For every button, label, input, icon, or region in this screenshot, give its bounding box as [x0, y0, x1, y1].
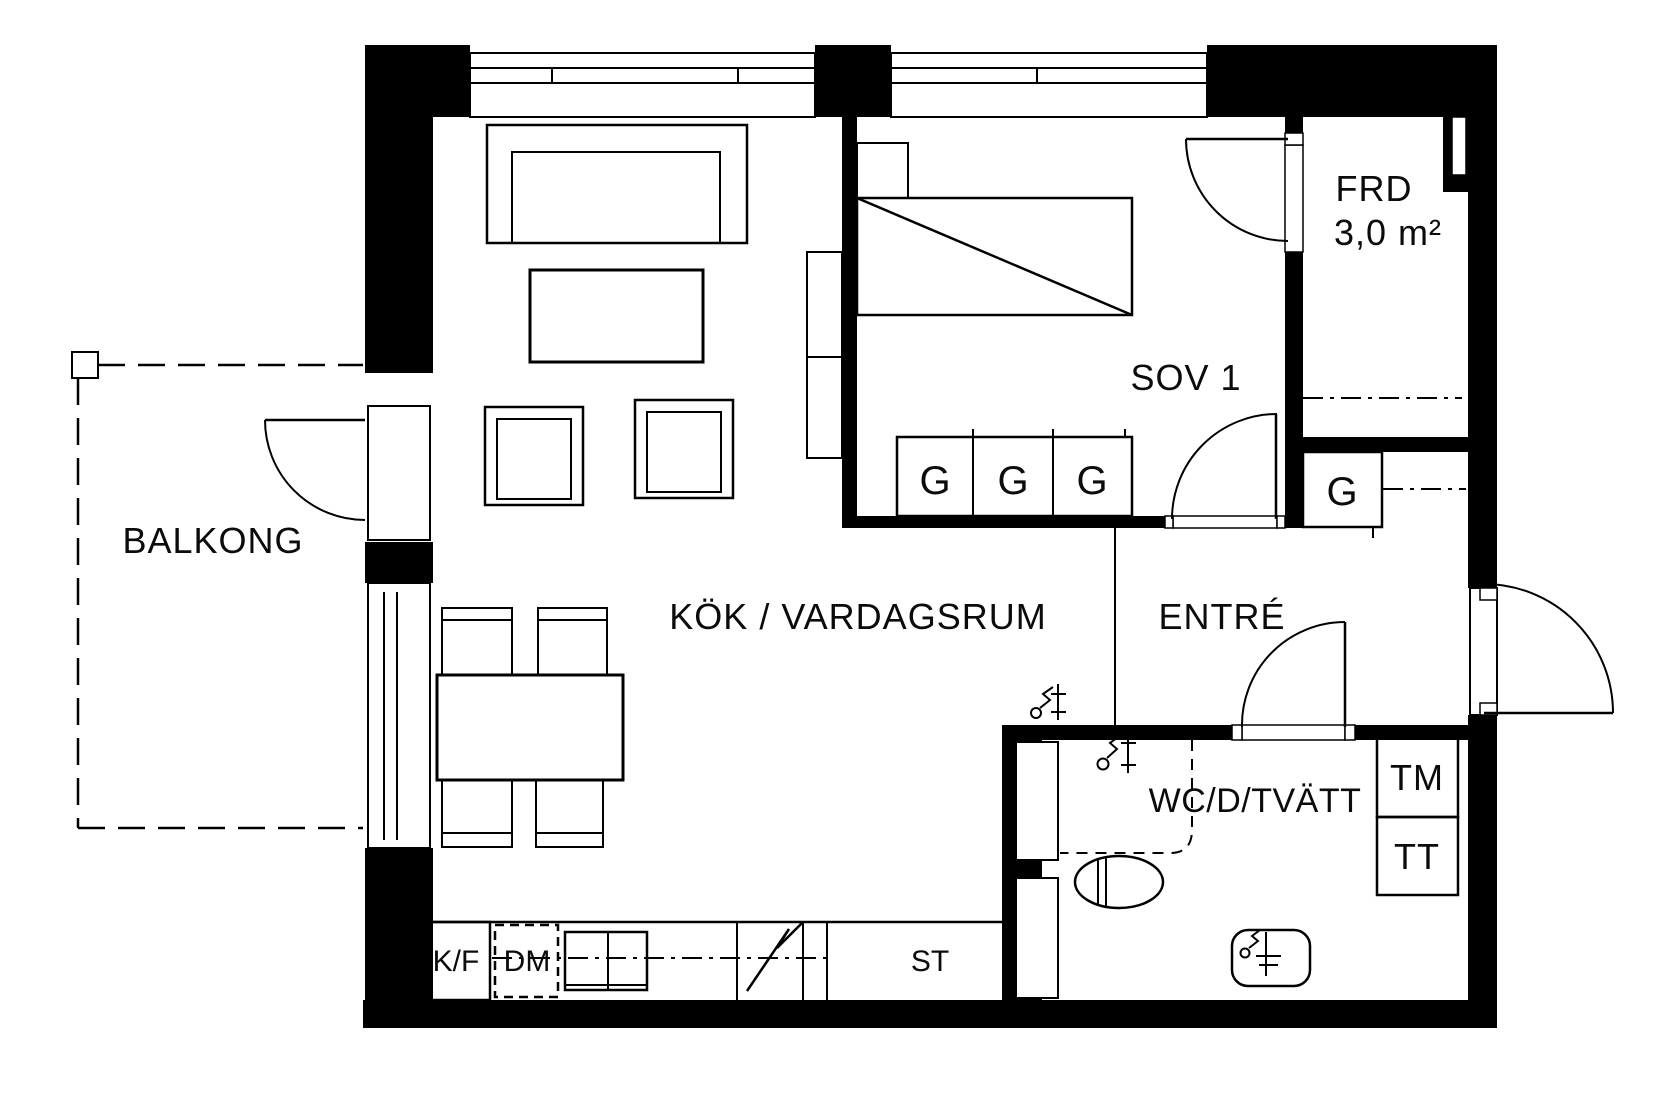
floor-plan-page: BALKONG KÖK / VARDAGSRUM SOV 1 ENTRÉ FRD… — [0, 0, 1675, 1097]
wall-bedroom-frd-stub — [1285, 117, 1303, 133]
shelf-unit — [807, 357, 842, 458]
wall-living-bedroom — [842, 117, 857, 516]
label-dishwasher: DM — [504, 945, 551, 978]
wall-left-lower — [365, 848, 433, 1000]
bedroom-door-opening — [1173, 516, 1277, 528]
bedroom-door-swing-arc — [1172, 414, 1277, 519]
wall-right-upper — [1468, 117, 1497, 588]
dining-chair — [538, 608, 607, 675]
bedside-table — [857, 143, 908, 198]
labels: BALKONG KÖK / VARDAGSRUM SOV 1 ENTRÉ FRD… — [122, 168, 1444, 978]
wall-bedroom-bottom-corner — [1285, 516, 1303, 528]
bathroom-door-hinge-notch — [1345, 725, 1355, 740]
label-storage-area: 3,0 m² — [1334, 212, 1442, 253]
label-wardrobe: G — [997, 459, 1028, 503]
shelf-unit — [807, 252, 842, 357]
window-bedroom — [891, 53, 1207, 117]
wall-bedroom-frd — [1285, 252, 1303, 516]
label-fridge-freezer: K/F — [433, 945, 480, 978]
basin-drain-icon — [1241, 949, 1250, 958]
armchair-seat — [647, 412, 721, 492]
label-wardrobe: G — [1326, 470, 1357, 514]
basin-faucet-icon — [1249, 930, 1281, 976]
wall-top-left-corner — [365, 45, 470, 117]
floor-plan-drawing: BALKONG KÖK / VARDAGSRUM SOV 1 ENTRÉ FRD… — [0, 0, 1675, 1097]
stove-icon — [747, 922, 803, 991]
front-door-swing-arc — [1484, 584, 1613, 713]
label-storage: FRD — [1336, 168, 1413, 209]
toilet-icon — [1075, 856, 1163, 908]
wall-bedroom-bottom — [842, 516, 1165, 528]
water-valve-icon — [1031, 708, 1041, 718]
window-living — [470, 53, 815, 117]
label-kitchen-living: KÖK / VARDAGSRUM — [669, 596, 1046, 637]
wall-right-lower — [1468, 715, 1497, 1000]
label-cleaning-closet: ST — [911, 945, 949, 978]
wall-frd-bottom — [1303, 437, 1468, 452]
wall-left-upper — [365, 117, 433, 373]
shower-fitting-icon — [1107, 735, 1136, 773]
balcony-door-opening — [368, 406, 430, 540]
label-tumble-dryer: TT — [1394, 836, 1440, 877]
wall-top-right — [1207, 45, 1497, 117]
living-room-furniture — [437, 125, 842, 847]
dining-chair — [442, 608, 512, 675]
frd-door-swing-arc — [1186, 139, 1288, 241]
armchair — [635, 400, 733, 498]
balcony-outline — [72, 352, 363, 828]
toilet-tank-lines — [1098, 858, 1106, 906]
wall-top-middle-pier — [815, 45, 891, 117]
label-washing-machine: TM — [1390, 757, 1444, 798]
wall-bottom — [363, 1000, 1497, 1028]
label-wardrobe: G — [1076, 459, 1107, 503]
walls — [363, 45, 1497, 1028]
shower-mixer-icon — [1098, 759, 1109, 770]
kitchen-sink — [565, 932, 647, 990]
bathroom-door-opening — [1242, 725, 1345, 740]
kitchen-sink-basin-lines — [565, 932, 647, 990]
label-bathroom: WC/D/TVÄTT — [1149, 782, 1362, 820]
label-bedroom: SOV 1 — [1130, 357, 1241, 398]
stove-bounds — [737, 922, 803, 1000]
bedroom-door-hinge-notch — [1277, 516, 1285, 528]
balcony-door-swing-arc — [265, 420, 365, 520]
sofa — [487, 125, 747, 243]
dining-chair — [442, 780, 512, 847]
front-door-opening — [1470, 588, 1497, 715]
plumbing-shaft-lower — [1016, 878, 1058, 998]
window-balcony-side — [368, 583, 430, 848]
coffee-table — [530, 270, 703, 362]
bathroom-door-swing-arc — [1242, 622, 1345, 727]
wall-left-mullion — [365, 542, 433, 583]
front-door-jamb-notch — [1480, 588, 1497, 600]
dining-chair — [536, 780, 603, 847]
frd-niche-slot — [1452, 117, 1466, 175]
label-balcony: BALKONG — [122, 520, 303, 561]
plumbing-shaft-upper — [1016, 742, 1058, 860]
dining-table — [437, 675, 623, 780]
armchair — [485, 407, 583, 505]
label-wardrobe: G — [919, 459, 950, 503]
bed-diagonal — [857, 198, 1132, 315]
bathroom-door-jamb-notch — [1232, 725, 1242, 740]
sofa-seat — [512, 152, 720, 243]
frd-door-opening — [1285, 145, 1303, 252]
label-entry: ENTRÉ — [1158, 596, 1285, 637]
balcony-corner-post — [72, 352, 98, 378]
armchair-seat — [497, 419, 571, 499]
water-valve-fitting-icon — [1040, 684, 1066, 720]
